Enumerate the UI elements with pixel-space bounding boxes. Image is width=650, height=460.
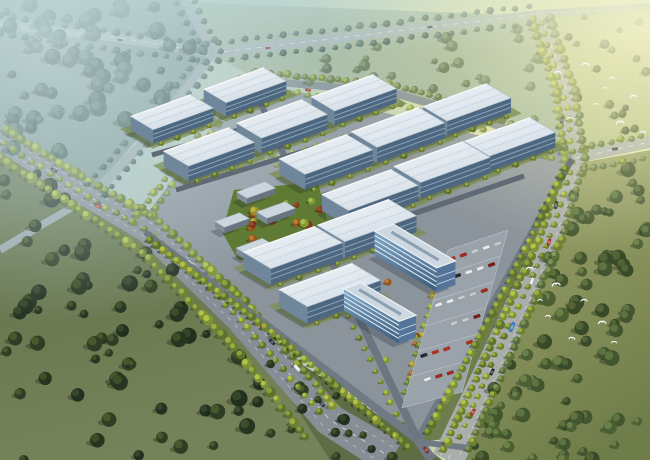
industrial-park-aerial-scene	[0, 0, 650, 460]
aerial-rendering-view	[0, 0, 650, 460]
